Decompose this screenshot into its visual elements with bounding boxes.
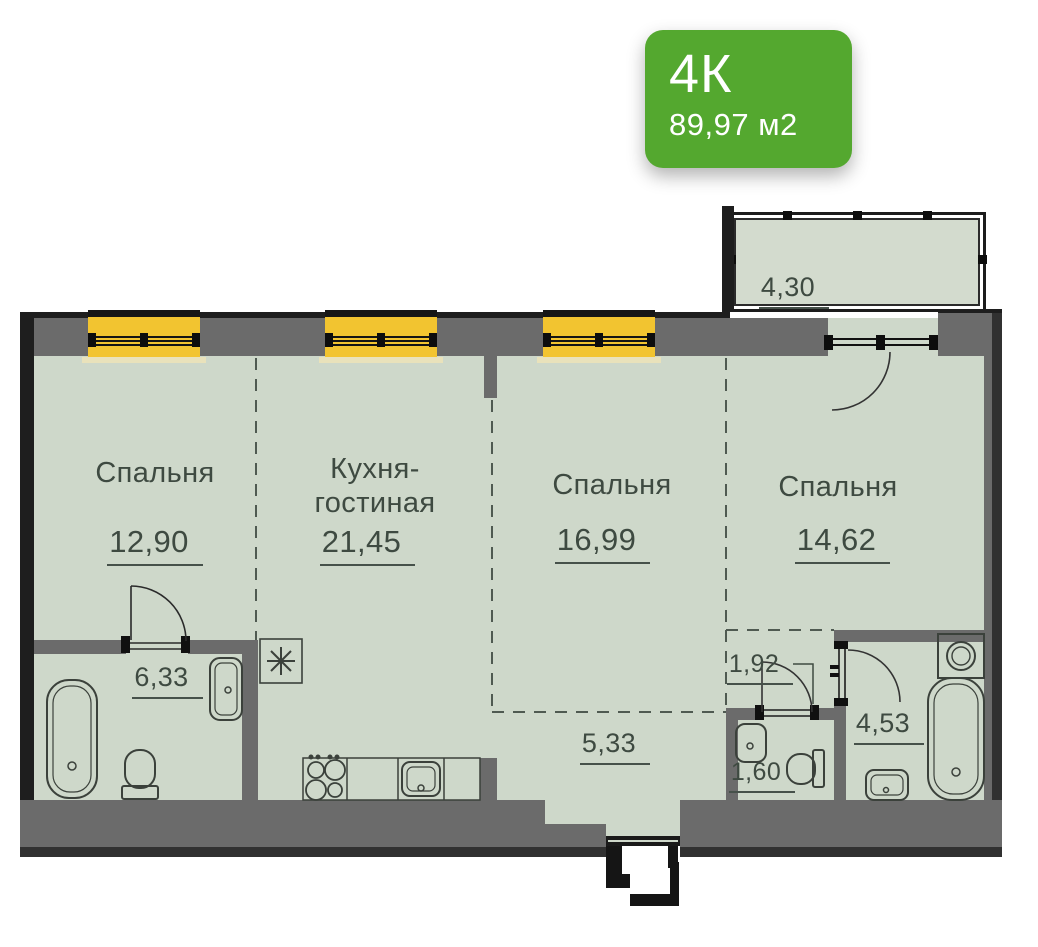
bottom-outer-edge	[20, 847, 610, 857]
room-area-bedroom3: 14,62	[745, 522, 940, 564]
right-wall	[984, 318, 992, 847]
kitchen-wall-stub	[484, 356, 497, 398]
apartment-area-label: 89,97 м2	[669, 107, 852, 143]
entrance-door-icon	[606, 846, 679, 906]
corridor-wc-wall	[726, 708, 758, 720]
room-label-kitchen: Кухня-гостиная	[275, 452, 475, 520]
room-area-bedroom2: 16,99	[505, 522, 700, 564]
room-area-bathroom1: 6,33	[105, 662, 230, 699]
window	[88, 310, 200, 357]
balcony-mullion	[783, 211, 792, 220]
room-label-bedroom3: Спальня	[734, 470, 942, 504]
left-outer-wall	[20, 312, 34, 857]
apartment-type-label: 4К	[669, 46, 852, 103]
right-outer-edge	[992, 313, 1002, 857]
top-wall	[34, 318, 88, 356]
balcony-side-wall	[722, 206, 734, 312]
room-label-bedroom2: Спальня	[508, 468, 716, 502]
top-wall	[437, 318, 543, 356]
window	[543, 310, 655, 357]
bathroom2-top-wall	[838, 630, 988, 642]
room-area-corridor: 1,92	[722, 650, 798, 685]
window	[325, 310, 437, 357]
bottom-wall-step	[545, 824, 606, 847]
room-label-bedroom1: Спальня	[50, 456, 260, 490]
entrance-threshold	[606, 836, 680, 846]
room-area-hallway: 5,33	[550, 728, 680, 765]
top-wall	[200, 318, 325, 356]
balcony-mullion	[853, 211, 862, 220]
balcony-mullion	[978, 255, 987, 264]
apartment-type-badge: 4К 89,97 м2	[645, 30, 852, 168]
room-area-wc: 1,60	[726, 758, 798, 793]
bathroom1-top-wall	[34, 640, 126, 654]
room-area-bathroom2: 4,53	[843, 708, 935, 745]
bathroom1-kitchen-wall	[242, 640, 258, 800]
kitchen-counter-end-wall	[480, 758, 497, 800]
room-area-balcony: 4,30	[748, 272, 840, 309]
room-area-bedroom1: 12,90	[50, 524, 260, 566]
bottom-wall-left	[20, 800, 545, 847]
floor-plan: 4К 89,97 м2	[0, 0, 1038, 947]
balcony-mullion	[923, 211, 932, 220]
room-area-kitchen: 21,45	[275, 524, 460, 566]
bottom-wall-right	[680, 800, 1002, 847]
bottom-outer-edge	[680, 847, 1002, 857]
top-wall	[655, 318, 828, 356]
